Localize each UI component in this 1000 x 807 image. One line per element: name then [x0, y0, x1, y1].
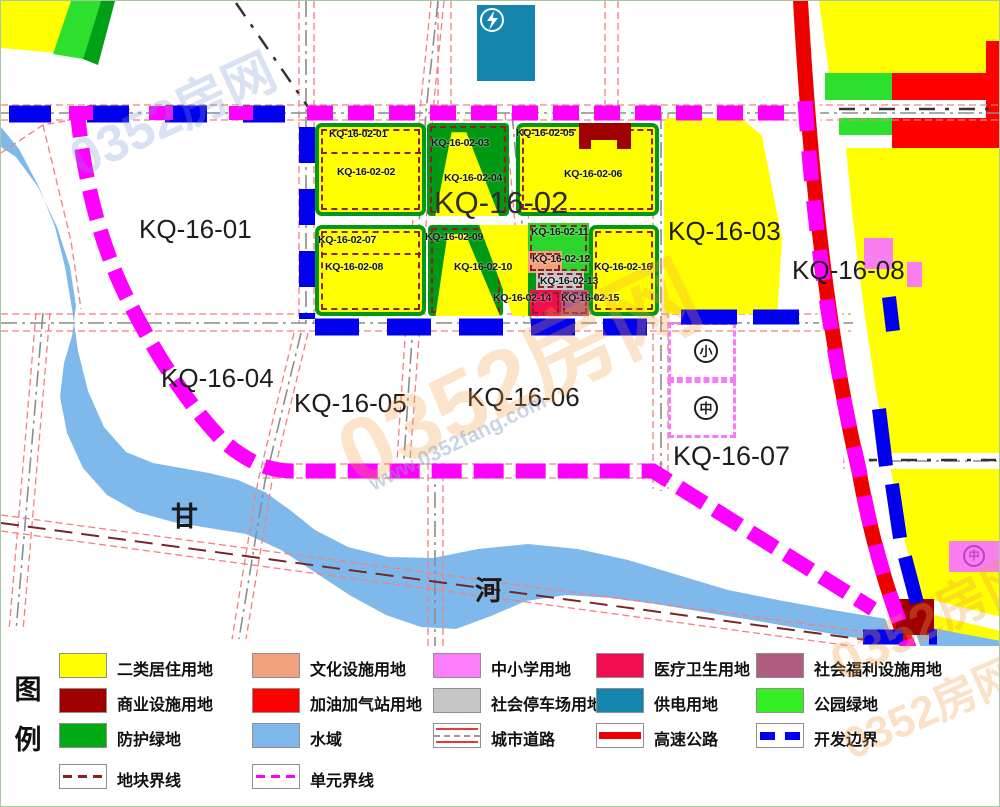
legend-label-unit-line: 单元界线: [310, 767, 374, 791]
legend-swatch-commercial: [59, 688, 107, 713]
zone-label-kq-16-02: KQ-16-02: [434, 185, 568, 221]
legend-label-city-road: 城市道路: [491, 726, 555, 750]
legend-swatch-parking: [433, 688, 481, 713]
parcel-label: KQ-16-02-11: [531, 227, 588, 239]
parcel-label: KQ-16-02-10: [454, 262, 512, 274]
legend-label-commercial: 商业设施用地: [117, 691, 213, 715]
zone-label-kq-16-05: KQ-16-05: [294, 388, 407, 419]
river-name-char-2: 河: [475, 569, 502, 608]
legend: 图 例 二类居住用地文化设施用地中小学用地医疗卫生用地社会福利设施用地商业设施用…: [1, 646, 1000, 807]
legend-title-char-1: 图: [13, 666, 43, 716]
parcel-label: KQ-16-02-12: [532, 254, 590, 266]
map-area: 小 中 中: [1, 1, 1000, 646]
boundary-canvas: [1, 1, 1000, 646]
legend-swatch-park-green: [756, 688, 804, 713]
legend-swatch-power: [596, 688, 644, 713]
legend-swatch-culture: [252, 653, 300, 678]
legend-label-parking: 社会停车场用地: [491, 691, 603, 715]
legend-label-power: 供电用地: [654, 691, 718, 715]
legend-label-parcel-line: 地块界线: [117, 767, 181, 791]
parcel-label: KQ-16-02-02: [337, 167, 395, 179]
legend-title: 图 例: [13, 666, 43, 766]
parcel-label: KQ-16-02-07: [318, 235, 376, 247]
parcel-label: KQ-16-02-09: [425, 232, 483, 244]
zone-label-kq-16-07: KQ-16-07: [673, 441, 790, 472]
legend-swatch-highway: [596, 723, 644, 748]
parcel-label: KQ-16-02-05: [516, 128, 574, 140]
parcel-label: KQ-16-02-01: [329, 129, 387, 141]
legend-label-medical: 医疗卫生用地: [654, 656, 750, 680]
legend-swatch-parcel-line: [59, 764, 107, 789]
legend-label-park-green: 公园绿地: [814, 691, 878, 715]
legend-label-residential: 二类居住用地: [117, 656, 213, 680]
river-name-char-1: 甘: [171, 495, 198, 534]
legend-swatch-city-road: [433, 723, 481, 748]
legend-label-school: 中小学用地: [491, 656, 571, 680]
legend-swatch-protect-green: [59, 723, 107, 748]
legend-label-dev-boundary: 开发边界: [814, 726, 878, 750]
legend-swatch-residential: [59, 653, 107, 678]
legend-label-highway: 高速公路: [654, 726, 718, 750]
legend-swatch-gas-station: [252, 688, 300, 713]
zone-label-kq-16-04: KQ-16-04: [161, 363, 274, 394]
zone-label-kq-16-06: KQ-16-06: [467, 382, 580, 413]
planning-map-page: 小 中 中: [0, 0, 1000, 807]
legend-title-char-2: 例: [13, 716, 43, 766]
parcel-label: KQ-16-02-13: [540, 276, 598, 288]
legend-swatch-medical: [596, 653, 644, 678]
legend-swatch-unit-line: [252, 764, 300, 789]
zone-label-kq-16-03: KQ-16-03: [668, 216, 781, 247]
legend-label-welfare: 社会福利设施用地: [814, 656, 942, 680]
legend-swatch-welfare: [756, 653, 804, 678]
legend-label-culture: 文化设施用地: [310, 656, 406, 680]
parcel-label: KQ-16-02-06: [564, 169, 622, 181]
parcel-label: KQ-16-02-16: [594, 262, 652, 274]
parcel-label: KQ-16-02-04: [444, 173, 502, 185]
legend-label-protect-green: 防护绿地: [117, 726, 181, 750]
parcel-label: KQ-16-02-08: [325, 262, 383, 274]
parcel-label: KQ-16-02-14: [493, 293, 551, 305]
parcel-label: KQ-16-02-15: [561, 293, 619, 305]
parcel-label: KQ-16-02-03: [431, 138, 489, 150]
zone-label-kq-16-01: KQ-16-01: [139, 214, 252, 245]
zone-label-kq-16-08: KQ-16-08: [792, 255, 905, 286]
legend-swatch-school: [433, 653, 481, 678]
legend-label-gas-station: 加油加气站用地: [310, 691, 422, 715]
legend-swatch-dev-boundary: [756, 723, 804, 748]
legend-swatch-water: [252, 723, 300, 748]
legend-label-water: 水域: [310, 726, 342, 750]
